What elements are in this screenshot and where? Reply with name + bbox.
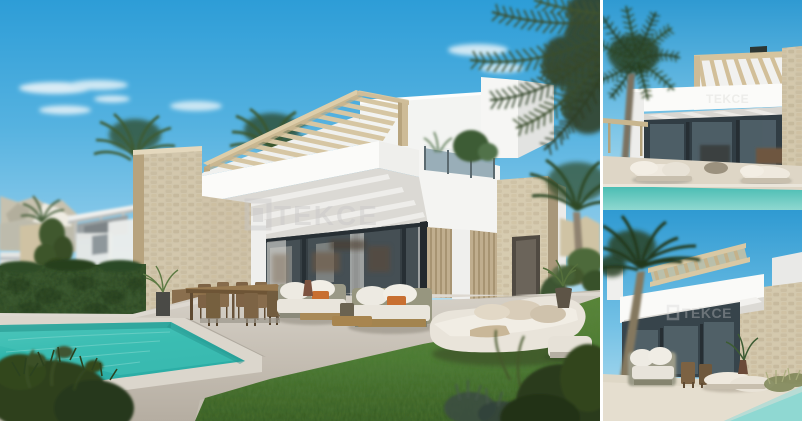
svg-text:TEKCE: TEKCE: [706, 92, 749, 106]
svg-text:TEKCE: TEKCE: [274, 200, 379, 231]
svg-text:TEKCE: TEKCE: [682, 305, 732, 321]
